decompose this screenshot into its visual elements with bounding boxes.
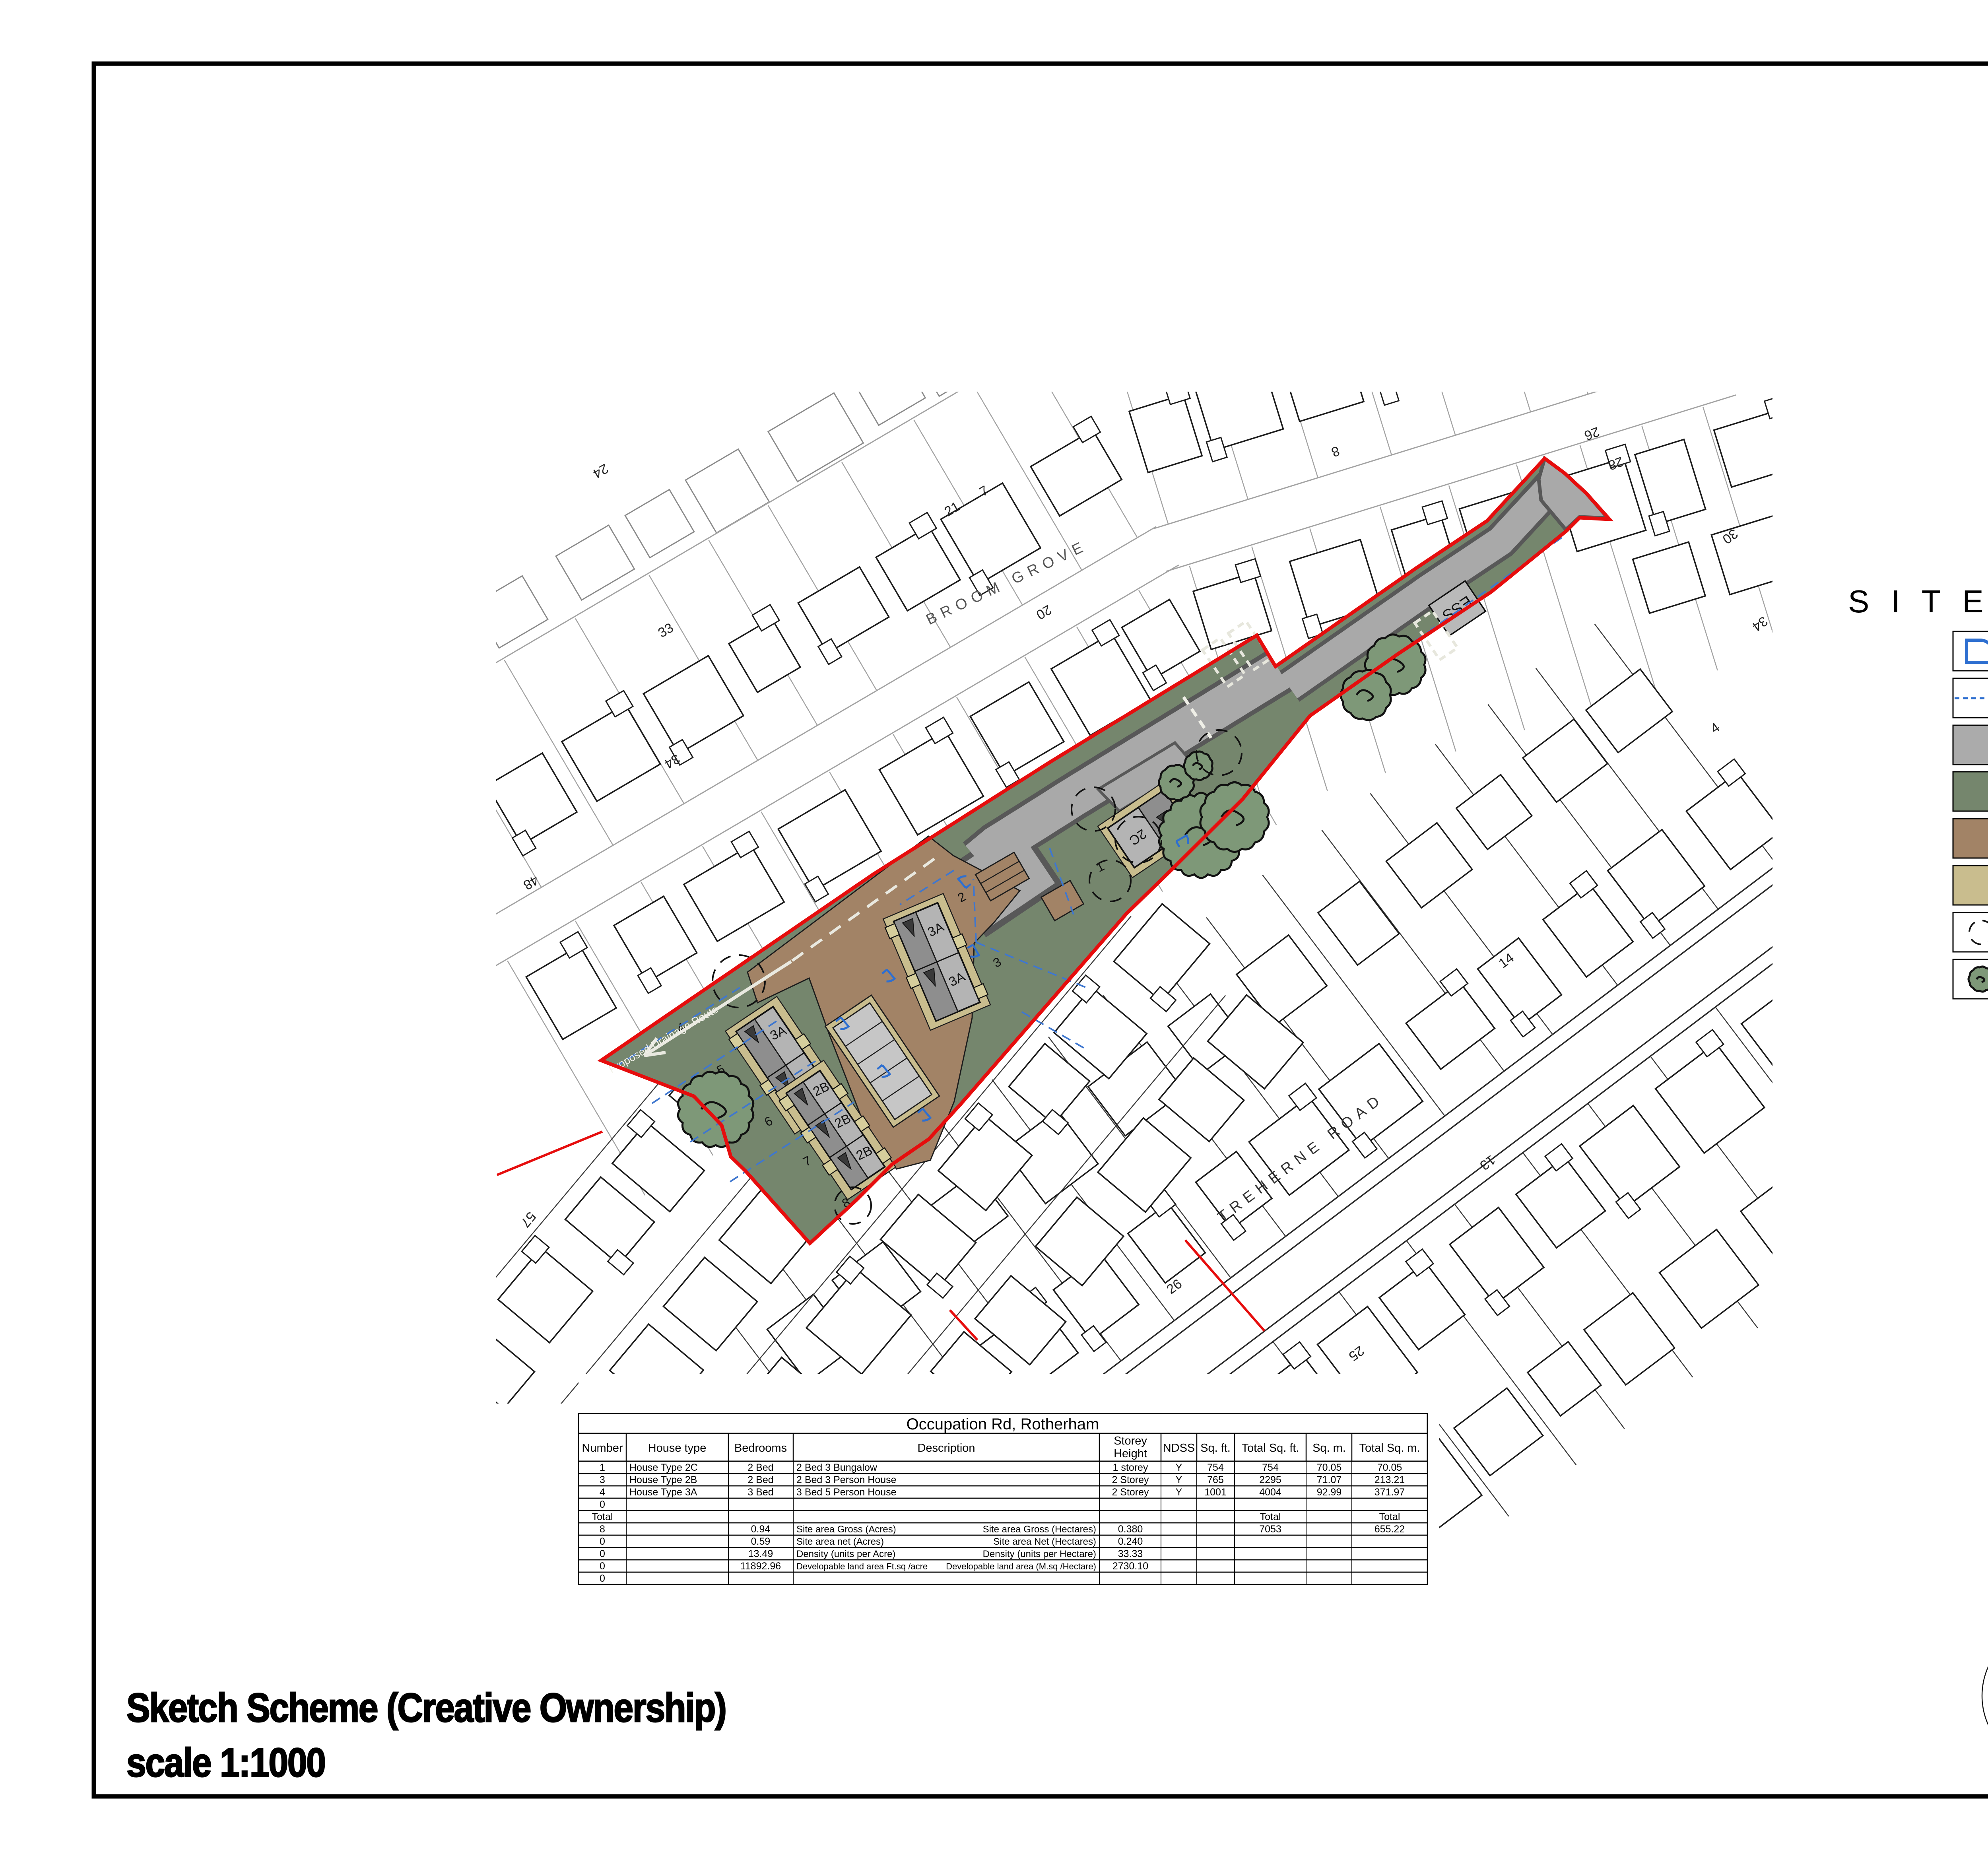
svg-text:Height: Height (1114, 1447, 1147, 1460)
svg-text:Sq. ft.: Sq. ft. (1200, 1442, 1231, 1454)
svg-text:Y: Y (1176, 1462, 1182, 1473)
svg-text:Bedrooms: Bedrooms (734, 1442, 787, 1454)
svg-text:1001: 1001 (1204, 1487, 1227, 1498)
svg-text:1: 1 (600, 1462, 605, 1473)
svg-text:655.22: 655.22 (1375, 1524, 1405, 1535)
svg-text:7053: 7053 (1259, 1524, 1281, 1535)
svg-text:754: 754 (1207, 1462, 1224, 1473)
svg-text:3 Bed: 3 Bed (747, 1487, 773, 1498)
svg-text:92.99: 92.99 (1317, 1487, 1342, 1498)
svg-text:0: 0 (600, 1548, 605, 1559)
svg-text:Site area Gross (Hectares): Site area Gross (Hectares) (983, 1524, 1096, 1535)
svg-text:213.21: 213.21 (1375, 1474, 1405, 1485)
svg-text:11892.96: 11892.96 (740, 1561, 781, 1572)
svg-text:0: 0 (600, 1536, 605, 1547)
svg-text:0.94: 0.94 (751, 1524, 771, 1535)
svg-text:0: 0 (600, 1561, 605, 1572)
svg-text:0.380: 0.380 (1118, 1524, 1143, 1535)
svg-text:2 Bed: 2 Bed (747, 1474, 773, 1485)
svg-text:Total: Total (1260, 1511, 1281, 1522)
svg-text:House Type 2B: House Type 2B (629, 1474, 697, 1485)
svg-text:2 Bed 3 Bungalow: 2 Bed 3 Bungalow (796, 1462, 878, 1473)
svg-text:Sketch Scheme (Creative Owners: Sketch Scheme (Creative Ownership) (126, 1685, 726, 1730)
svg-text:1 storey: 1 storey (1113, 1462, 1148, 1473)
svg-text:2 Storey: 2 Storey (1112, 1487, 1149, 1498)
svg-text:13.49: 13.49 (748, 1548, 773, 1559)
svg-text:0.59: 0.59 (751, 1536, 771, 1547)
svg-text:765: 765 (1207, 1474, 1224, 1485)
svg-text:Site area net (Acres): Site area net (Acres) (796, 1536, 884, 1547)
svg-text:3 Bed 5 Person House: 3 Bed 5 Person House (796, 1487, 897, 1498)
svg-text:House Type 3A: House Type 3A (629, 1487, 697, 1498)
svg-text:754: 754 (1262, 1462, 1279, 1473)
svg-text:0: 0 (600, 1573, 605, 1584)
svg-text:House Type 2C: House Type 2C (629, 1462, 698, 1473)
svg-text:Y: Y (1176, 1474, 1182, 1485)
svg-text:71.07: 71.07 (1317, 1474, 1342, 1485)
svg-text:Density (units per Acre): Density (units per Acre) (796, 1549, 895, 1559)
svg-text:33.33: 33.33 (1118, 1548, 1143, 1559)
svg-text:2 Bed: 2 Bed (747, 1462, 773, 1473)
svg-text:NDSS: NDSS (1163, 1442, 1195, 1454)
svg-text:2295: 2295 (1259, 1474, 1281, 1485)
svg-text:Total Sq. m.: Total Sq. m. (1359, 1442, 1420, 1454)
svg-text:Developable land area Ft.sq /: Developable land area Ft.sq /acre (796, 1561, 928, 1571)
svg-text:2 Bed 3 Person House: 2 Bed 3 Person House (796, 1474, 897, 1485)
svg-text:4: 4 (600, 1487, 605, 1498)
svg-text:Description: Description (917, 1442, 975, 1454)
svg-text:3: 3 (600, 1474, 605, 1485)
svg-text:70.05: 70.05 (1317, 1462, 1342, 1473)
svg-text:House type: House type (648, 1442, 707, 1454)
svg-text:Site area Gross (Acres): Site area Gross (Acres) (796, 1524, 896, 1535)
svg-text:Total Sq. ft.: Total Sq. ft. (1241, 1442, 1299, 1454)
svg-text:Occupation Rd, Rotherham: Occupation Rd, Rotherham (907, 1415, 1099, 1433)
svg-text:Developable land area (M.sq /: Developable land area (M.sq /Hectare) (946, 1561, 1096, 1571)
svg-text:8: 8 (600, 1524, 605, 1535)
svg-text:Storey: Storey (1114, 1435, 1147, 1447)
svg-text:371.97: 371.97 (1375, 1487, 1405, 1498)
svg-text:2730.10: 2730.10 (1112, 1561, 1148, 1572)
svg-text:S I T E L A Y O U T K E Y: S I T E L A Y O U T K E Y : (1848, 584, 1988, 619)
svg-text:0: 0 (600, 1499, 605, 1510)
svg-text:2 Storey: 2 Storey (1112, 1474, 1149, 1485)
svg-text:Density (units per Hectare): Density (units per Hectare) (983, 1549, 1096, 1559)
svg-text:Total: Total (1379, 1511, 1400, 1522)
svg-text:Total: Total (592, 1511, 613, 1522)
svg-text:Number: Number (582, 1442, 623, 1454)
svg-text:Site area Net (Hectares): Site area Net (Hectares) (993, 1536, 1096, 1547)
svg-text:0.240: 0.240 (1118, 1536, 1143, 1547)
svg-text:4004: 4004 (1259, 1487, 1281, 1498)
svg-text:70.05: 70.05 (1377, 1462, 1402, 1473)
svg-text:Sq. m.: Sq. m. (1312, 1442, 1346, 1454)
svg-text:scale 1:1000: scale 1:1000 (126, 1740, 325, 1785)
svg-text:Y: Y (1176, 1487, 1182, 1498)
